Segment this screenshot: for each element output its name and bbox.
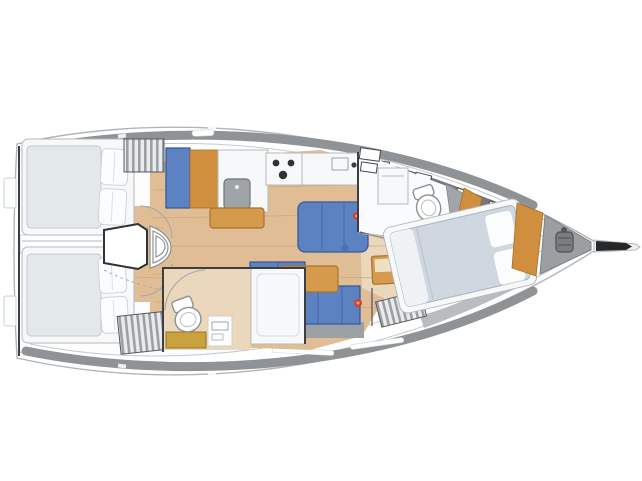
galley-bench (210, 208, 264, 228)
shelf-unit (359, 148, 380, 162)
shower-stall (251, 268, 305, 344)
stanchion-tick (208, 372, 216, 376)
yacht-floorplan-svg (0, 0, 642, 481)
deck-hatch-window (192, 130, 214, 137)
shelf-unit (360, 162, 377, 173)
hanging-locker-icon (124, 139, 164, 172)
hanging-locker-icon (117, 312, 166, 354)
windlass-drum (561, 227, 567, 233)
faucet (235, 185, 239, 189)
yacht-floorplan-page (0, 0, 642, 481)
stanchion-tick (388, 135, 397, 141)
double-bed-mattress (27, 254, 101, 336)
burner (273, 160, 280, 167)
windlass-body (556, 232, 573, 252)
sink-icon (224, 179, 250, 209)
transom-step (4, 178, 16, 208)
stanchion-tick (300, 126, 308, 131)
bowsprit (596, 241, 632, 251)
stanchion-tick (388, 361, 397, 367)
cabin-door-panel (190, 150, 218, 208)
stove-icon (266, 153, 302, 185)
aft-head (163, 268, 305, 352)
head-sink-unit (208, 316, 232, 346)
burner (351, 162, 356, 167)
companionway-steps (104, 224, 147, 269)
stanchion-tick (300, 372, 308, 377)
burner (279, 171, 287, 179)
aft-cabin-port (22, 139, 134, 235)
transom-step (4, 296, 16, 326)
burner (288, 160, 295, 167)
vanity-cabinet (166, 332, 206, 348)
hatch-marker-core (357, 302, 360, 305)
vanity-unit (378, 168, 408, 204)
double-bed-mattress (27, 146, 101, 228)
bow (512, 203, 640, 276)
seat-locker-blue (166, 148, 190, 208)
